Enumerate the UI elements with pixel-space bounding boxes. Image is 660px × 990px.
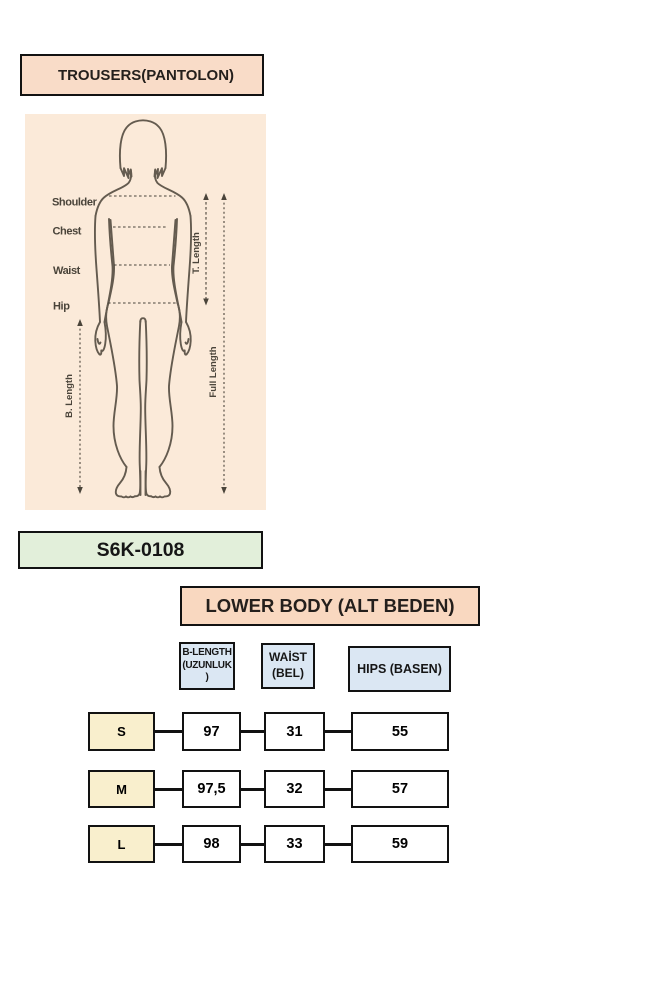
svg-text:Chest: Chest [53, 226, 82, 238]
svg-text:B. Length: B. Length [64, 374, 75, 418]
svg-text:Hip: Hip [53, 301, 70, 313]
svg-text:T. Length: T. Length [191, 232, 202, 274]
svg-text:Waist: Waist [53, 265, 81, 277]
svg-text:Full Length: Full Length [208, 346, 219, 397]
svg-text:Shoulder: Shoulder [52, 197, 98, 209]
